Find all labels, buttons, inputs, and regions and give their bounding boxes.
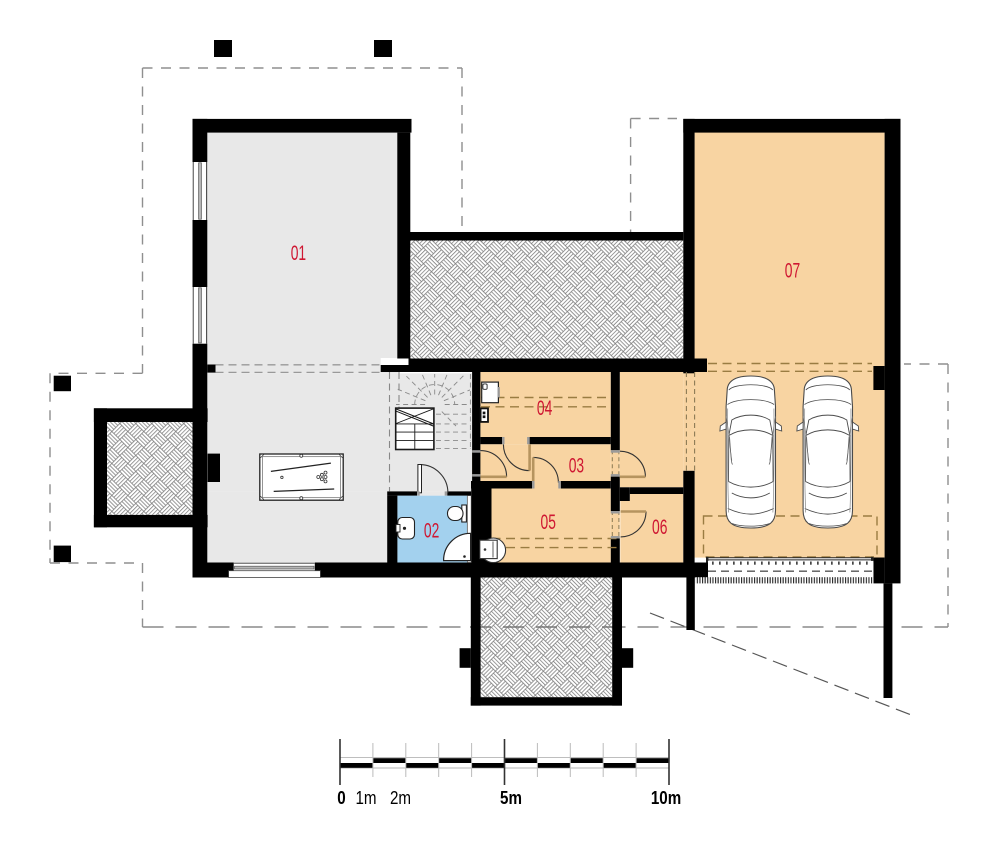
svg-text:05: 05: [540, 510, 555, 534]
svg-text:03: 03: [569, 454, 584, 478]
svg-text:5m: 5m: [500, 788, 522, 809]
svg-text:07: 07: [785, 259, 800, 283]
svg-text:10m: 10m: [651, 788, 681, 809]
svg-text:2m: 2m: [390, 788, 411, 809]
svg-text:1m: 1m: [355, 788, 376, 809]
svg-text:02: 02: [424, 519, 439, 543]
svg-text:0: 0: [337, 788, 345, 809]
svg-text:06: 06: [652, 515, 667, 539]
svg-text:01: 01: [291, 241, 306, 265]
svg-text:04: 04: [537, 396, 552, 420]
